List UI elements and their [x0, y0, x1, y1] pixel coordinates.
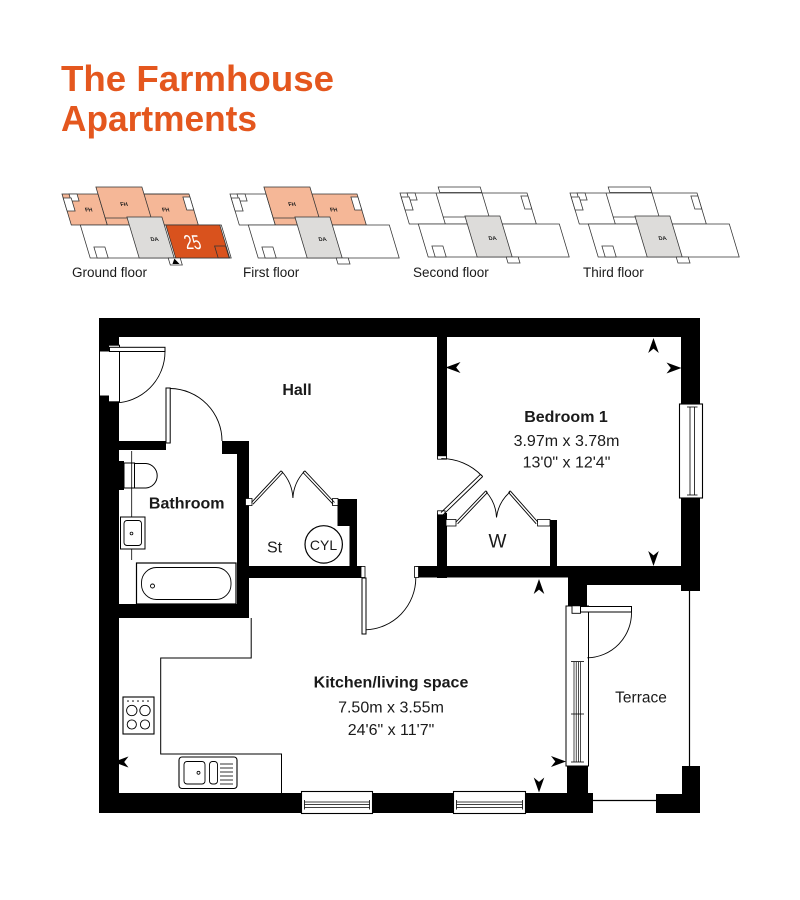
svg-text:W: W — [489, 532, 507, 553]
svg-text:Ground floor: Ground floor — [72, 265, 148, 280]
svg-text:Terrace: Terrace — [615, 690, 667, 707]
svg-text:First floor: First floor — [243, 265, 300, 280]
svg-text:St: St — [267, 540, 283, 557]
svg-text:Hall: Hall — [282, 382, 311, 399]
svg-text:24'6" x 11'7": 24'6" x 11'7" — [348, 722, 435, 739]
svg-text:Bedroom 1: Bedroom 1 — [524, 409, 608, 426]
svg-text:7.50m x 3.55m: 7.50m x 3.55m — [338, 700, 444, 717]
svg-text:Apartments: Apartments — [61, 98, 257, 139]
svg-text:CYL: CYL — [310, 537, 337, 553]
svg-text:13'0" x 12'4": 13'0" x 12'4" — [523, 455, 611, 472]
svg-text:3.97m x 3.78m: 3.97m x 3.78m — [514, 433, 620, 450]
svg-text:Kitchen/living space: Kitchen/living space — [314, 675, 469, 692]
svg-text:The Farmhouse: The Farmhouse — [61, 58, 334, 99]
svg-text:Bathroom: Bathroom — [149, 496, 225, 513]
svg-text:Second floor: Second floor — [413, 265, 489, 280]
svg-text:Third floor: Third floor — [583, 265, 644, 280]
